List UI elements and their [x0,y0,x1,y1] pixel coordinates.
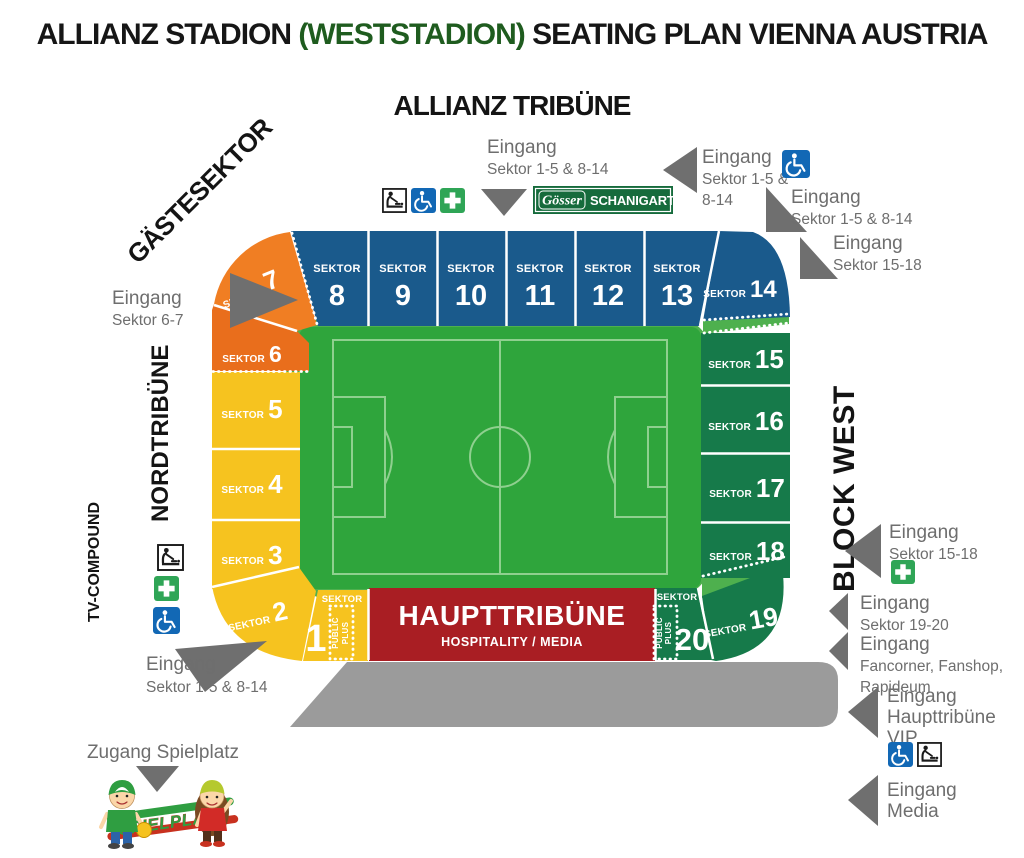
sector-10-label: SEKTOR [447,263,494,275]
entrance-top-right-a-l2: Sektor 1-5 & [702,171,789,188]
entrance-top-right-a-l1: Eingang [702,147,772,168]
entrance-top-center-l1: Eingang [487,137,557,158]
sector-8-number: 8 [329,280,345,312]
wheelchair-icon [888,742,913,767]
schanigarten-banner: Gösser SCHANIGARTEN [533,186,692,214]
entrance-top-right-b-l2: Sektor 1-5 & 8-14 [791,211,913,228]
arrow-east-media-icon [848,775,878,826]
sector-1-number: 1 [305,618,326,660]
sector-20-plus: PLUS [664,621,673,644]
sector-10-number: 10 [455,280,487,312]
arrow-east-fan-icon [829,632,848,670]
haupttribuene-title: HAUPTTRIBÜNE [399,600,626,631]
sector-9-number: 9 [395,280,411,312]
playground-illustration: SPIELPLATZ [101,780,239,849]
entrance-east-mid-l1: Eingang [889,522,959,543]
sector-8-13-band[interactable] [291,231,719,326]
sector-20-number: 20 [675,622,709,657]
sector-20-public: PUBLIC [655,617,664,649]
sector-11-label: SEKTOR [516,263,563,275]
playground-girl [195,780,231,847]
haupttribuene-subtitle: HOSPITALITY / MEDIA [441,635,583,649]
sector-12-number: 12 [592,280,624,312]
entrance-west-gate-l1: Eingang [112,288,182,309]
walkway [290,662,838,727]
arrow-playground-icon [136,766,179,792]
baby-changing-icon [158,545,183,570]
sector-12-label: SEKTOR [584,263,631,275]
seating-plan: ALLIANZ STADION (WESTSTADION) SEATING PL… [0,0,1024,858]
sector-20-tag: SEKTOR [657,592,698,603]
wheelchair-icon [153,607,180,634]
first-aid-icon [154,576,179,601]
arrow-east-19-20-icon [829,593,848,630]
banner-brand: Gösser [542,194,582,209]
stadium-map: SEKTOR 8 SEKTOR 9 SEKTOR 10 SEKTOR 11 SE… [212,231,838,727]
entrance-top-center-l2: Sektor 1-5 & 8-14 [487,161,609,178]
entrance-top-right-b-l1: Eingang [791,187,861,208]
baby-changing-icon [383,189,406,212]
sector-1-plus: PLUS [341,621,350,644]
entrance-west-gate-l2: Sektor 6-7 [112,312,184,329]
entrance-east-19-20-l1: Eingang [860,593,930,614]
sector-11-number: 11 [525,280,556,312]
entrance-east-media-l2: Media [887,801,939,822]
sector-1-public: PUBLIC [331,617,340,649]
entrance-southwest-l2: Sektor 1-5 & 8-14 [146,679,268,696]
wheelchair-icon [411,188,436,213]
first-aid-icon [891,560,915,584]
entrance-east-vip-l1: Eingang [887,686,957,707]
sector-1-tag: SEKTOR [322,594,363,605]
sector-8-label: SEKTOR [313,263,360,275]
wheelchair-icon [782,150,810,178]
baby-changing-icon [918,743,941,766]
first-aid-icon [440,188,465,213]
entrance-top-right-a-l3: 8-14 [702,192,733,209]
entrance-east-vip-l2: Haupttribüne [887,707,996,728]
entrance-southwest-l1: Eingang [146,654,216,675]
playground-access-label: Zugang Spielplatz [87,742,239,763]
sector-13-label: SEKTOR [653,263,700,275]
entrance-east-19-20-l2: Sektor 19-20 [860,617,949,634]
entrance-east-media-l1: Eingang [887,780,957,801]
sector-9-label: SEKTOR [379,263,426,275]
arrow-east-mid-icon [845,524,881,578]
entrance-top-right-c-l2: Sektor 15-18 [833,257,922,274]
arrow-top-center-icon [481,189,527,216]
banner-label: SCHANIGARTEN [590,193,692,208]
entrance-east-fan-l2: Fancorner, Fanshop, [860,658,1003,675]
sector-13-number: 13 [661,280,693,312]
entrance-east-fan-l1: Eingang [860,634,930,655]
entrance-top-right-c-l1: Eingang [833,233,903,254]
